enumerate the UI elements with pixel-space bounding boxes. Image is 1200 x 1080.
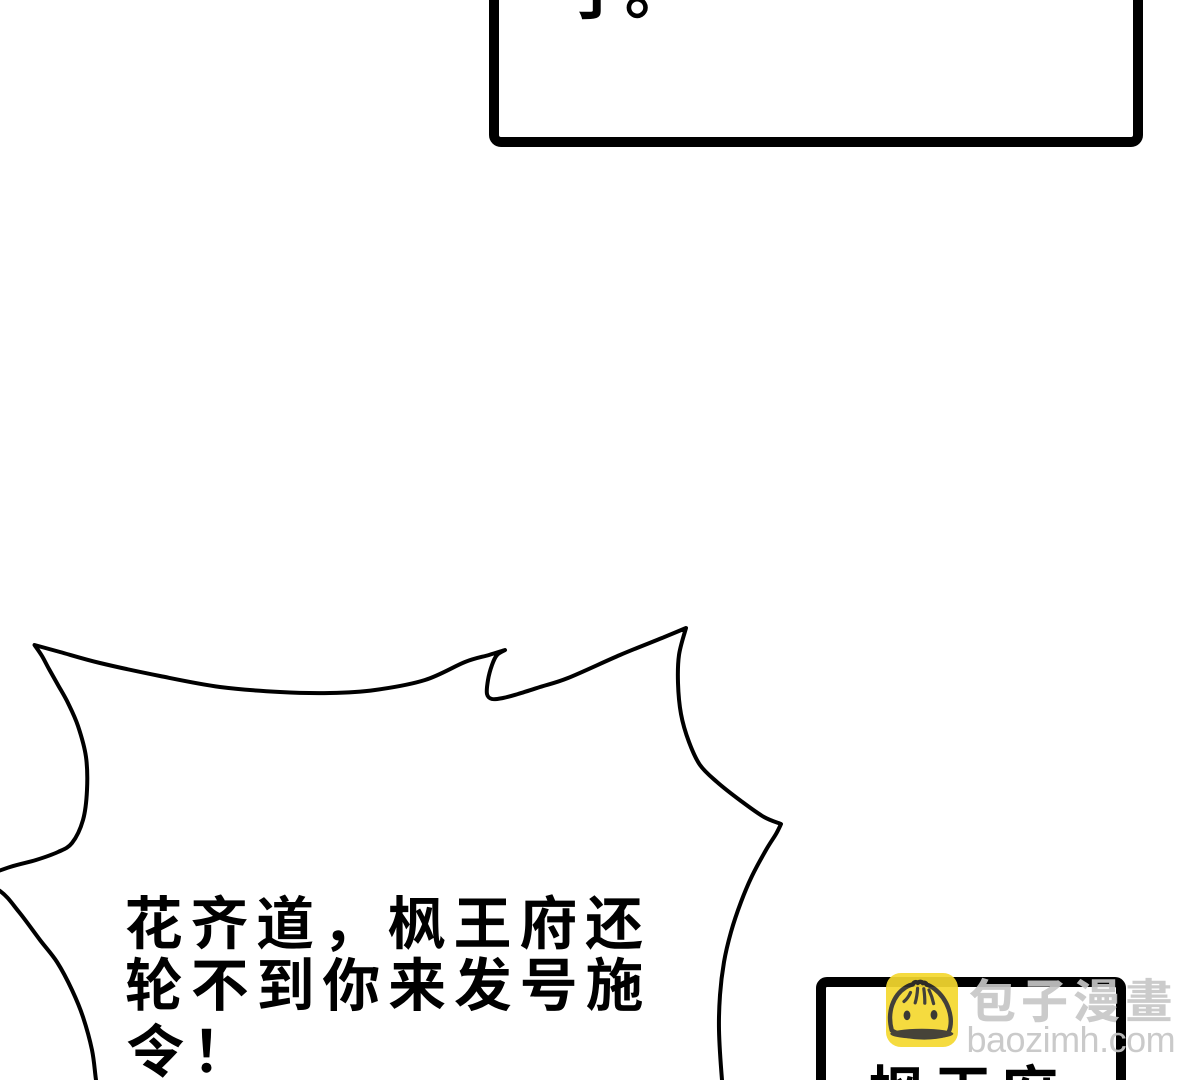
svg-text:baozimh.com: baozimh.com — [967, 1019, 1176, 1060]
